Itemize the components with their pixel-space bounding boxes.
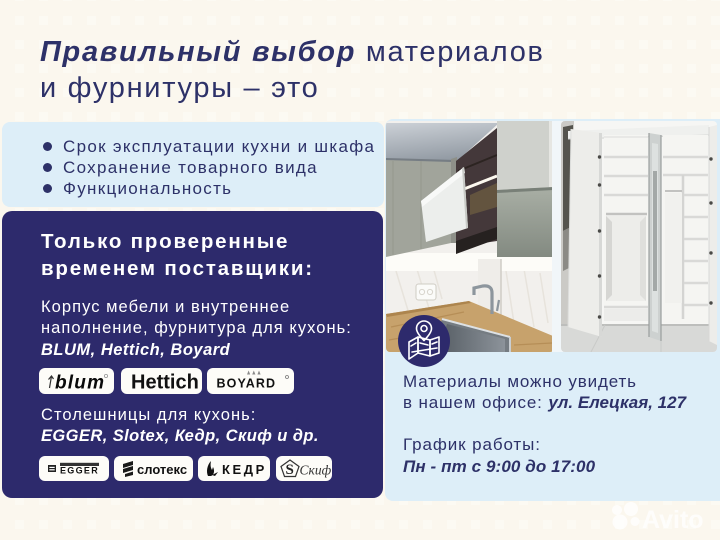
svg-text:EGGER: EGGER [60,466,99,476]
svg-text:слотекс: слотекс [137,462,187,477]
svg-text:КЕДР: КЕДР [222,462,267,477]
svg-text:Avito: Avito [642,506,704,534]
svg-text:Hettich: Hettich [131,372,199,394]
svg-text:Скиф: Скиф [300,463,332,478]
svg-text:S: S [286,462,294,478]
svg-text:BOYARD: BOYARD [217,377,277,391]
svg-text:blum: blum [55,373,105,394]
